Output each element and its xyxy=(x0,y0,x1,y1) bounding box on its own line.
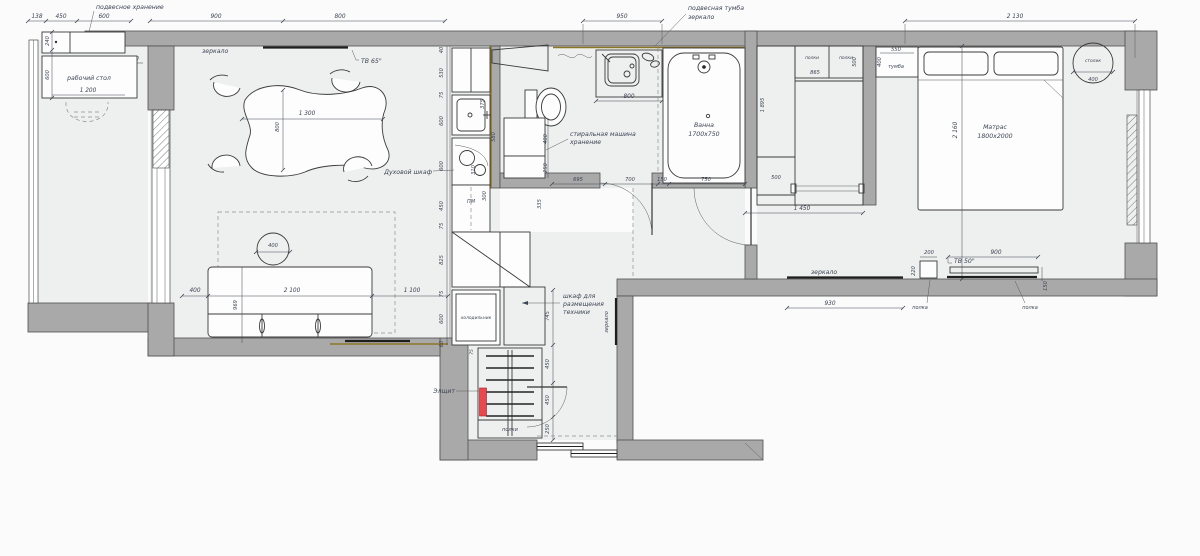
bathtub: Ванна 1700x750 xyxy=(663,48,745,183)
dim-800-top: 800 xyxy=(334,14,345,20)
dim-washer-250: 250 xyxy=(543,163,549,173)
svg-text:75: 75 xyxy=(439,291,445,297)
floor-plan-canvas: 138 450 600 подвесное хранение 310 рабоч… xyxy=(0,0,1200,556)
nightstand-width: 550 xyxy=(891,47,901,53)
dim-2130: 2 130 xyxy=(1007,14,1024,20)
bedroom-mirror-label: зеркало xyxy=(811,269,838,276)
tech-cabinet-label3: техники xyxy=(563,309,590,316)
floor-plan-drawing: 138 450 600 подвесное хранение 310 рабоч… xyxy=(0,0,1200,556)
wall-entry-bottom-right xyxy=(617,440,763,460)
svg-text:375: 375 xyxy=(480,99,486,109)
wardrobe-shelf-label-2: полки xyxy=(839,56,853,61)
living-mirror-label: зеркало xyxy=(202,48,229,55)
wall-hall-left xyxy=(440,338,468,460)
wall-pier-balcony xyxy=(148,46,174,110)
dim-220: 220 xyxy=(911,266,917,276)
dim-vanity-950: 950 xyxy=(616,14,627,20)
bedroom-window xyxy=(1139,90,1150,243)
dim-450: 450 xyxy=(55,14,66,20)
hanging-storage-label: подвесное хранение xyxy=(96,4,164,11)
svg-text:310: 310 xyxy=(471,165,477,175)
dim-240: 240 xyxy=(45,36,51,46)
dim-500-vert: 500 xyxy=(852,57,858,67)
dim-table-width: 1 300 xyxy=(299,111,316,117)
dim-200: 200 xyxy=(924,250,934,256)
nightstand-depth: 400 xyxy=(877,57,883,67)
fridge: холодильник xyxy=(452,290,500,345)
electric-panel xyxy=(480,388,487,416)
desk-width: 1 200 xyxy=(80,88,97,94)
mattress-label-line1: Матрас xyxy=(983,124,1007,131)
electric-panel-label: Элщит xyxy=(432,388,455,395)
dishwasher-label: ПМ xyxy=(467,199,476,205)
svg-text:825: 825 xyxy=(439,255,445,265)
wall-bath-corridor-lower xyxy=(745,245,757,279)
svg-text:530: 530 xyxy=(439,68,445,78)
corridor-floor xyxy=(633,188,745,279)
svg-text:600: 600 xyxy=(439,314,445,324)
svg-text:60: 60 xyxy=(439,341,445,347)
shelf-dot xyxy=(55,41,57,43)
bedroom-hatch-column xyxy=(1127,115,1137,225)
wall-bath-corridor-upper xyxy=(745,31,757,188)
tv-50-label: ТВ 50" xyxy=(954,258,975,265)
svg-text:40: 40 xyxy=(439,47,445,53)
hanging-shelf xyxy=(42,32,125,53)
dim-sofa-right: 1 100 xyxy=(404,288,421,294)
wall-balcony-bottom xyxy=(28,303,150,332)
dim-695: 695 xyxy=(573,177,583,183)
side-table-dim: 400 xyxy=(1088,77,1098,83)
wall-wardrobe-right xyxy=(863,46,876,205)
hall-mirror-label: зеркало xyxy=(604,311,610,333)
svg-text:335: 335 xyxy=(537,199,543,209)
nightstand: 550 тумба 400 xyxy=(876,47,918,77)
dim-700: 700 xyxy=(625,177,635,183)
partition-hatch-column xyxy=(153,110,169,168)
dim-900-tv: 900 xyxy=(990,250,1001,256)
dim-sofa-depth: 969 xyxy=(233,300,239,310)
dim-150-tv: 150 xyxy=(1043,281,1049,291)
svg-text:600: 600 xyxy=(439,116,445,126)
bathtub-label2: 1700x750 xyxy=(688,131,719,138)
dim-75-gap: 75 xyxy=(469,349,475,355)
dim-sofa-left: 400 xyxy=(189,288,200,294)
dim-coffee-table: 400 xyxy=(268,243,278,249)
vanity-label-line2: зеркало xyxy=(688,14,715,21)
svg-text:580: 580 xyxy=(491,132,497,142)
bed: Матрас 1800x2000 xyxy=(918,47,1063,210)
dim-250: 250 xyxy=(545,424,551,434)
vanity-label-line1: подвесная тумба xyxy=(688,4,744,12)
bathtub-label1: Ванна xyxy=(694,122,714,129)
fridge-label: холодильник xyxy=(460,316,492,321)
svg-text:600: 600 xyxy=(439,161,445,171)
dim-745: 745 xyxy=(545,311,551,321)
dim-1450: 1 450 xyxy=(794,206,811,212)
wall-top xyxy=(85,31,1140,46)
dim-1895: 1 895 xyxy=(760,98,766,113)
dim-washer-400: 400 xyxy=(543,134,549,144)
wall-balcony-connector xyxy=(148,303,174,356)
svg-text:75: 75 xyxy=(439,223,445,229)
dim-450a: 450 xyxy=(545,359,551,369)
wall-bedroom-bottom xyxy=(617,279,1157,296)
entrance-sliding-door xyxy=(537,443,617,457)
dim-sofa-width: 2 100 xyxy=(284,288,301,294)
nightstand-label: тумба xyxy=(888,64,904,70)
washer-label-line1: стиральная машина xyxy=(570,131,636,138)
dim-2160: 2 160 xyxy=(953,121,959,138)
cooktop-cabinet xyxy=(452,138,490,185)
hall-shelves-label: полки xyxy=(502,427,519,433)
svg-text:75: 75 xyxy=(439,92,445,98)
wall-entry-right xyxy=(617,296,633,443)
tech-cabinet-label2: размещения xyxy=(562,301,604,308)
tv-65-label: ТВ 65" xyxy=(361,58,382,65)
side-table-label: столик xyxy=(1085,59,1101,64)
oven-label: Духовой шкаф xyxy=(383,169,433,176)
dim-450b: 450 xyxy=(545,395,551,405)
shelf-2-label: полка xyxy=(1022,305,1038,311)
dim-500-left: 500 xyxy=(771,175,781,181)
dim-150: 150 xyxy=(657,177,667,183)
dim-600-v: 600 xyxy=(45,70,51,80)
dim-750: 750 xyxy=(701,177,711,183)
svg-text:300: 300 xyxy=(482,191,488,201)
mattress-label-line2: 1800x2000 xyxy=(977,133,1012,140)
dim-table-depth: 800 xyxy=(275,122,281,132)
dim-900: 900 xyxy=(210,14,221,20)
washer-label-line2: хранение xyxy=(569,139,601,146)
dim-138: 138 xyxy=(31,14,42,20)
shelf-1-label: полка xyxy=(912,305,928,311)
dim-sink-800: 800 xyxy=(623,94,634,100)
wall-right-top-pier xyxy=(1125,31,1157,90)
wardrobe-shelf-label-1: полки xyxy=(805,56,819,61)
dim-865: 865 xyxy=(810,70,820,76)
desk-label: рабочий стол xyxy=(66,74,111,82)
washer-storage-column: 400 250 xyxy=(504,118,549,178)
svg-text:450: 450 xyxy=(439,201,445,211)
tech-cabinet-label1: шкаф для xyxy=(563,293,596,300)
dim-600: 600 xyxy=(98,14,109,20)
dim-930: 930 xyxy=(824,301,835,307)
